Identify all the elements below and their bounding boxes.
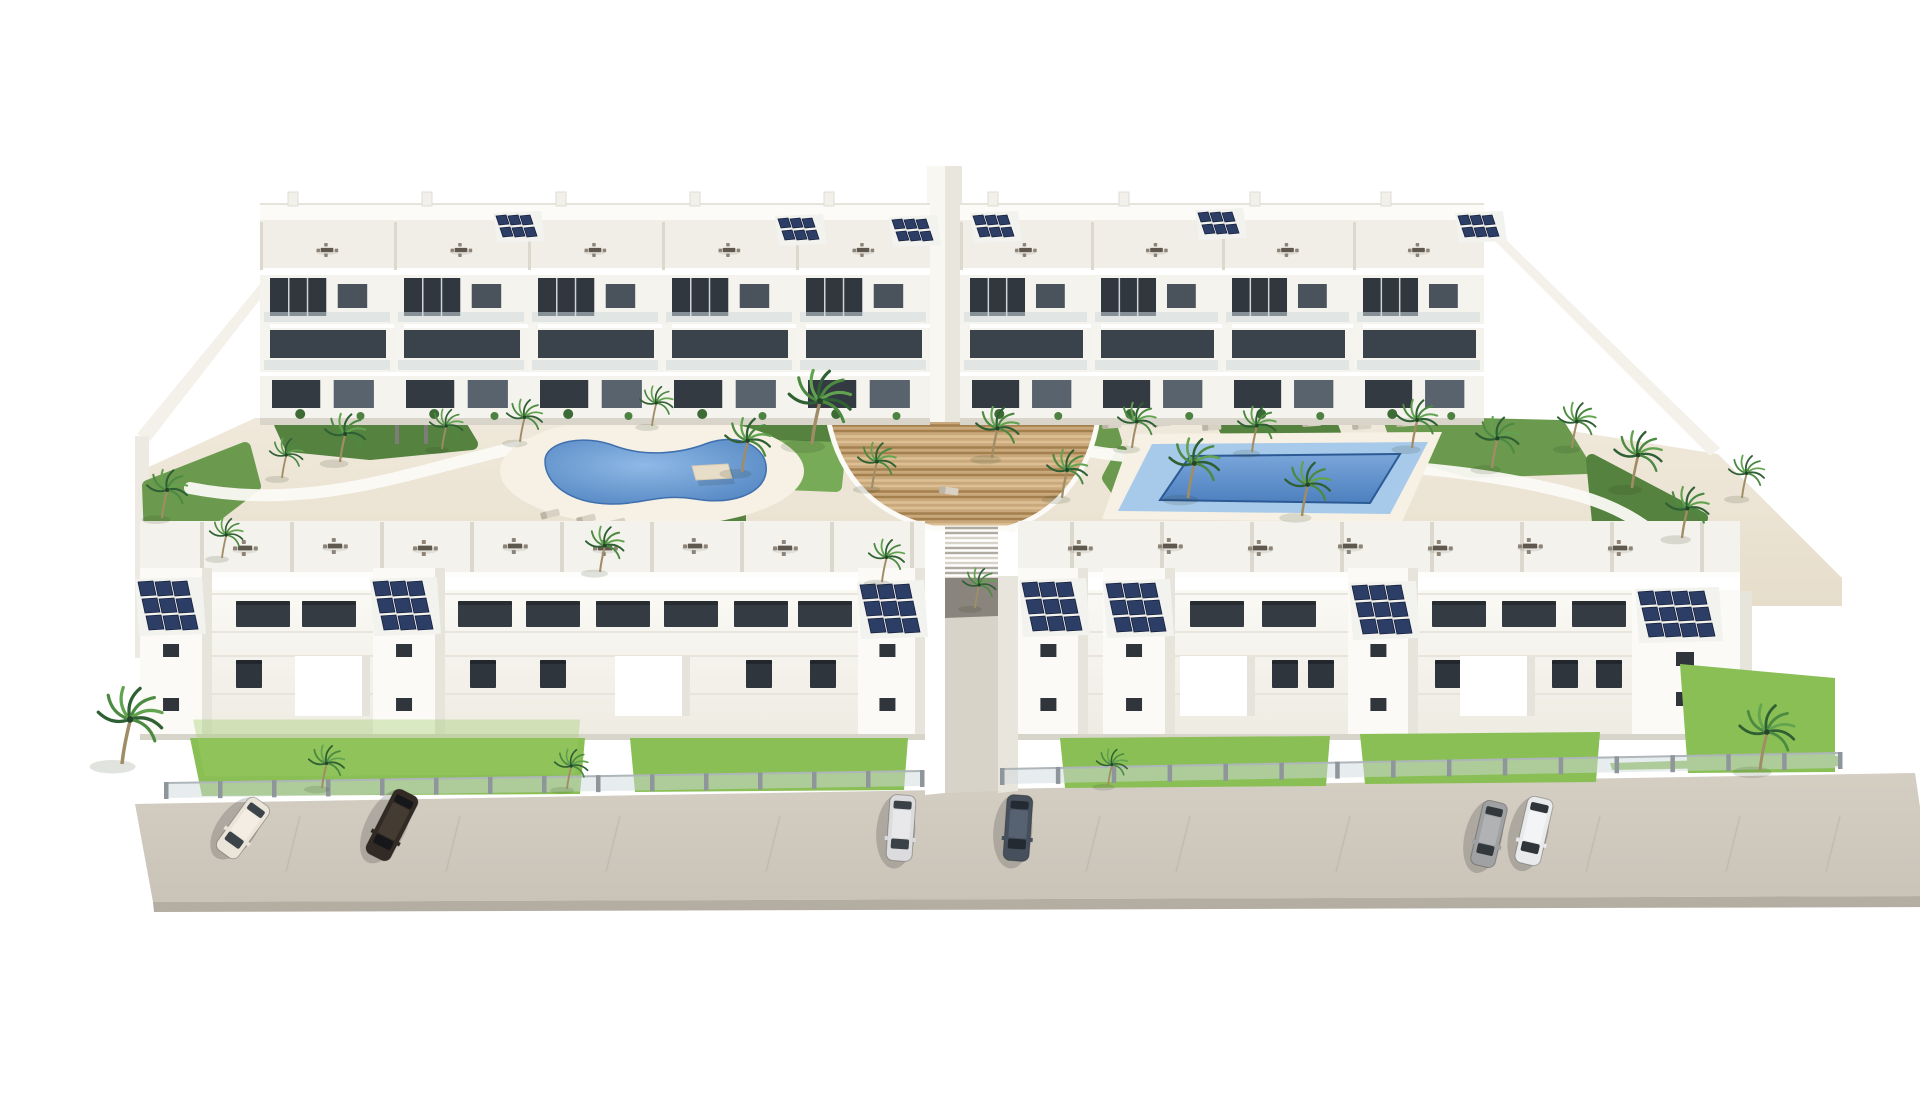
solar-array	[1349, 581, 1420, 640]
chair	[1539, 544, 1543, 548]
solar-array	[370, 577, 441, 636]
bush	[1054, 412, 1062, 420]
roof-terrace	[260, 220, 930, 274]
balcony-glass-rail	[1095, 312, 1218, 322]
chair	[1347, 538, 1351, 542]
solar-panel	[155, 581, 173, 596]
solar-panel	[1022, 582, 1040, 597]
chair	[469, 249, 473, 253]
porch-side	[1527, 656, 1535, 716]
palm-shadow	[1660, 535, 1691, 544]
fence-post	[1168, 765, 1173, 782]
window	[1167, 284, 1196, 308]
fence-post	[1838, 752, 1843, 769]
chair	[1077, 552, 1081, 556]
porch-side	[682, 656, 690, 716]
terrace-divider	[740, 522, 744, 572]
solar-panel	[1056, 582, 1074, 597]
palm-crown	[343, 432, 347, 436]
solar-panel	[1642, 607, 1660, 621]
chair	[1023, 243, 1026, 247]
palm-crown	[325, 761, 329, 765]
porch-side	[1247, 656, 1255, 716]
chair	[1167, 550, 1171, 554]
solar-panel	[1377, 619, 1395, 634]
chair	[324, 254, 328, 258]
chair	[324, 243, 328, 247]
palm-crown	[570, 764, 573, 767]
solar-panel	[390, 581, 408, 596]
chair	[451, 249, 455, 253]
solar-panel	[1697, 623, 1715, 637]
window	[1234, 380, 1281, 408]
north-apartment-blocks	[260, 166, 1484, 425]
palm-crown	[225, 533, 228, 536]
window	[540, 380, 588, 408]
palm-crown	[1764, 729, 1770, 735]
window	[1272, 660, 1298, 688]
window-recess-shadow	[1262, 601, 1316, 605]
chair	[317, 249, 321, 253]
bush	[357, 412, 365, 420]
fence-post	[920, 770, 925, 787]
fence-post	[1782, 753, 1787, 770]
chair	[242, 552, 246, 556]
solar-panel	[1659, 607, 1677, 621]
palm-crown	[655, 401, 658, 404]
solar-array	[1103, 579, 1174, 638]
palm-crown	[978, 583, 981, 586]
elevator-tower-side	[945, 166, 962, 422]
window	[874, 284, 903, 308]
solar-array	[775, 214, 827, 246]
chair	[1416, 254, 1420, 258]
solar-panel	[1638, 591, 1656, 605]
chair	[335, 249, 339, 253]
palm-shadow	[853, 486, 880, 494]
fence-post	[1447, 759, 1452, 776]
palm-shadow	[1732, 767, 1771, 779]
fence-post	[1670, 755, 1675, 772]
table	[688, 544, 702, 549]
recessed-glazing	[536, 330, 654, 358]
palm-crown	[1192, 461, 1197, 466]
bush	[1447, 412, 1455, 420]
solar-panel	[1356, 602, 1374, 617]
bush	[893, 412, 901, 420]
solar-panel	[1043, 599, 1061, 614]
balcony-slab	[528, 324, 662, 328]
window	[1429, 284, 1458, 308]
balcony-glass-rail	[666, 360, 792, 370]
car-rear-window	[893, 800, 912, 809]
palm-shadow	[1724, 496, 1750, 504]
recessed-glazing	[1361, 330, 1476, 358]
palm-shadow	[1092, 784, 1114, 791]
porch-side	[362, 656, 370, 716]
porch	[1460, 656, 1535, 716]
window-recess-shadow	[236, 601, 290, 605]
palm-shadow	[142, 515, 171, 524]
solar-panel	[881, 601, 899, 616]
palm-crown	[127, 716, 133, 722]
fence-post	[812, 772, 817, 789]
palm-shadow	[1608, 485, 1642, 495]
palm-shadow	[320, 459, 349, 468]
fence-post	[1335, 762, 1340, 779]
solar-panel	[868, 618, 886, 633]
recessed-glazing	[1101, 278, 1156, 316]
solar-panel	[407, 581, 425, 596]
tower-window	[1126, 644, 1142, 657]
balcony-slab	[1353, 372, 1484, 376]
solar-panel	[1655, 591, 1673, 605]
chair	[794, 546, 798, 550]
solar-panel	[1110, 600, 1128, 615]
chair	[1426, 249, 1430, 253]
solar-panel	[138, 581, 156, 596]
chair	[1033, 249, 1037, 253]
window	[1036, 284, 1065, 308]
palm-crown	[1495, 436, 1499, 440]
solar-panel	[1373, 602, 1391, 617]
solar-panel	[1663, 623, 1681, 637]
porch	[1180, 656, 1255, 716]
table	[1343, 544, 1357, 549]
chair	[1617, 552, 1621, 556]
palm-crown	[1110, 763, 1113, 766]
tower-window	[396, 644, 412, 657]
solar-panel	[1386, 585, 1404, 600]
chair	[719, 249, 723, 253]
chair	[413, 546, 417, 550]
window	[1163, 380, 1202, 408]
palm-crown	[285, 453, 288, 456]
car-mirror	[1030, 838, 1033, 842]
balcony-slab	[1091, 372, 1222, 376]
palm-shadow	[781, 440, 825, 453]
fence-post	[1559, 757, 1564, 774]
fence-post	[758, 773, 763, 790]
chair	[1449, 546, 1453, 550]
window	[1365, 380, 1412, 408]
solar-panel	[1689, 591, 1707, 605]
balcony-glass-rail	[964, 312, 1087, 322]
chair	[332, 550, 336, 554]
solar-array	[970, 211, 1022, 243]
recessed-glazing	[538, 278, 594, 316]
palm-shadow	[958, 606, 982, 613]
chair	[1527, 550, 1531, 554]
chair	[422, 540, 426, 544]
tower-window	[1370, 698, 1386, 711]
recessed-glazing	[968, 330, 1083, 358]
chair	[512, 538, 516, 542]
window	[870, 380, 910, 408]
balcony-slab	[796, 372, 930, 376]
left-perimeter-wall	[137, 284, 272, 441]
balcony-slab	[260, 324, 394, 328]
tower-window	[1040, 644, 1056, 657]
fence-post	[488, 777, 493, 794]
balcony-glass-rail	[264, 312, 390, 322]
chair	[1437, 540, 1441, 544]
chair	[503, 544, 507, 548]
terrace-parapet	[260, 268, 930, 275]
passage-wall	[998, 576, 1018, 793]
chair	[1154, 243, 1158, 247]
window-recess-shadow	[1435, 660, 1461, 664]
palm-crown	[885, 555, 889, 559]
palm-crown	[817, 398, 823, 404]
chair	[853, 249, 857, 253]
window-recess-shadow	[746, 660, 772, 664]
fence-post	[272, 780, 277, 797]
roof-terrace-band-left	[140, 521, 925, 579]
solar-panel	[398, 615, 416, 630]
tower-window	[1040, 698, 1056, 711]
fence-post	[542, 776, 547, 793]
window	[334, 380, 374, 408]
balcony-glass-rail	[532, 312, 658, 322]
solar-panel	[1394, 619, 1412, 634]
chair	[242, 540, 246, 544]
terrace-divider	[380, 522, 384, 572]
table	[508, 544, 522, 549]
solar-panel	[864, 601, 882, 616]
solar-panel	[394, 598, 412, 613]
solar-panel	[1369, 585, 1387, 600]
solar-array	[1195, 208, 1247, 240]
architectural-rendering	[40, 16, 1920, 1096]
car-mirror	[885, 836, 888, 840]
palm-shadow	[304, 786, 330, 794]
table	[1150, 248, 1163, 252]
balcony-slab	[1222, 324, 1353, 328]
window	[1308, 660, 1334, 688]
table	[857, 248, 870, 252]
solar-panel	[1352, 585, 1370, 600]
solar-panel	[1148, 617, 1166, 632]
window	[1298, 284, 1327, 308]
roof-stack	[824, 192, 834, 206]
solar-panel	[180, 615, 198, 630]
window	[740, 284, 769, 308]
window	[338, 284, 367, 308]
solar-panel	[377, 598, 395, 613]
roof-stack	[1250, 192, 1260, 206]
balcony-slab	[1222, 372, 1353, 376]
chair	[1338, 544, 1342, 548]
fence-post	[650, 774, 655, 791]
tower-window	[879, 644, 895, 657]
chair	[683, 544, 687, 548]
palm-shadow	[864, 580, 890, 588]
solar-panel	[1047, 616, 1065, 631]
window-recess-shadow	[810, 660, 836, 664]
palm-shadow	[581, 570, 608, 578]
solar-array	[1635, 587, 1723, 643]
terrace-divider	[260, 222, 263, 270]
balcony-glass-rail	[264, 360, 390, 370]
window	[736, 380, 776, 408]
terrace-divider	[1700, 522, 1704, 572]
window	[1435, 660, 1461, 688]
window	[470, 660, 496, 688]
palm-crown	[1415, 418, 1419, 422]
bush	[295, 409, 305, 419]
bush	[1316, 412, 1324, 420]
chair	[1608, 546, 1612, 550]
table	[455, 248, 468, 252]
north-blocks	[260, 192, 1484, 425]
window	[602, 380, 642, 408]
chair	[1257, 552, 1261, 556]
chair	[458, 254, 462, 258]
solar-panel	[411, 598, 429, 613]
recessed-glazing	[1232, 278, 1287, 316]
solar-array	[135, 577, 206, 636]
solar-panel	[1114, 617, 1132, 632]
solar-panel	[1060, 599, 1078, 614]
fence-post	[434, 778, 439, 795]
lawn-highlight	[193, 720, 580, 777]
chair	[1257, 540, 1261, 544]
window-recess-shadow	[596, 601, 650, 605]
chair	[1527, 538, 1531, 542]
chair	[860, 254, 864, 258]
fence-post	[1615, 756, 1620, 773]
table	[321, 248, 334, 252]
passage-wall	[925, 576, 945, 795]
chair	[1164, 249, 1168, 253]
table	[1073, 546, 1087, 551]
palm-shadow	[1163, 495, 1199, 506]
palm-trunk	[122, 721, 130, 764]
bush	[491, 412, 499, 420]
window-recess-shadow	[664, 601, 718, 605]
terrace-divider	[1353, 222, 1356, 270]
chair	[524, 544, 528, 548]
fence-post	[218, 781, 223, 798]
recessed-glazing	[268, 330, 386, 358]
terrace-divider	[290, 522, 294, 572]
lounger-back	[939, 486, 946, 494]
solar-panel	[373, 581, 391, 596]
balcony-slab	[662, 372, 796, 376]
recessed-glazing	[1099, 330, 1214, 358]
palm-shadow	[1470, 465, 1501, 474]
solar-panel	[902, 618, 920, 633]
chair	[860, 243, 864, 247]
palm-shadow	[1392, 445, 1421, 454]
north-block	[260, 192, 930, 425]
palm-crown	[1636, 453, 1641, 458]
window-recess-shadow	[798, 601, 852, 605]
terrace-divider	[470, 522, 474, 572]
solar-panel	[1106, 583, 1124, 598]
chair	[254, 546, 258, 550]
solar-array	[1019, 578, 1090, 637]
window	[606, 284, 635, 308]
table	[1163, 544, 1177, 549]
fence-post	[1000, 768, 1005, 785]
solar-array	[889, 215, 941, 247]
window-recess-shadow	[1190, 601, 1244, 605]
table	[1412, 248, 1425, 252]
solar-panel	[1680, 623, 1698, 637]
window	[810, 660, 836, 688]
balcony-slab	[960, 324, 1091, 328]
car-roof	[891, 809, 911, 838]
solar-panel	[1039, 582, 1057, 597]
fence-post	[1223, 764, 1228, 781]
window-recess-shadow	[458, 601, 512, 605]
recessed-glazing	[402, 330, 520, 358]
table	[238, 546, 252, 551]
solar-panel	[1064, 616, 1082, 631]
window-recess-shadow	[540, 660, 566, 664]
solar-panel	[1672, 591, 1690, 605]
table	[1281, 248, 1294, 252]
chair	[233, 546, 237, 550]
tower-window	[879, 698, 895, 711]
table	[1019, 248, 1032, 252]
kidney-pool	[500, 415, 804, 527]
palm-shadow	[970, 455, 1001, 464]
balcony-glass-rail	[532, 360, 658, 370]
fence-post	[1391, 761, 1396, 778]
chair	[1416, 243, 1420, 247]
balcony-slab	[1091, 324, 1222, 328]
recessed-glazing	[672, 278, 728, 316]
solar-panel	[1676, 607, 1694, 621]
fence-post	[596, 775, 601, 792]
chair	[737, 249, 741, 253]
bush	[759, 412, 767, 420]
chair	[1617, 540, 1621, 544]
car-rear-window	[1010, 800, 1029, 809]
window	[972, 380, 1019, 408]
palm-shadow	[425, 447, 449, 454]
rectangular-pool	[1102, 432, 1442, 522]
roof-stack	[422, 192, 432, 206]
fence-post	[866, 771, 871, 788]
chair	[726, 254, 730, 258]
palm-shadow	[719, 469, 751, 479]
solar-panel	[1127, 600, 1145, 615]
solar-panel	[898, 601, 916, 616]
fence-post	[704, 773, 709, 790]
chair	[1077, 540, 1081, 544]
window	[406, 380, 454, 408]
bush	[697, 409, 707, 419]
terrace-divider	[560, 522, 564, 572]
chair	[1015, 249, 1019, 253]
palm-crown	[523, 415, 527, 419]
terrace-divider	[200, 522, 204, 572]
chair	[726, 243, 730, 247]
fence-post	[1279, 763, 1284, 780]
palm-shadow	[265, 476, 289, 483]
stair-tower-side	[202, 568, 212, 738]
window	[472, 284, 501, 308]
palm-crown	[1305, 482, 1310, 487]
chair	[871, 249, 875, 253]
solar-panel	[885, 618, 903, 633]
window	[468, 380, 508, 408]
solar-panel	[1693, 607, 1711, 621]
